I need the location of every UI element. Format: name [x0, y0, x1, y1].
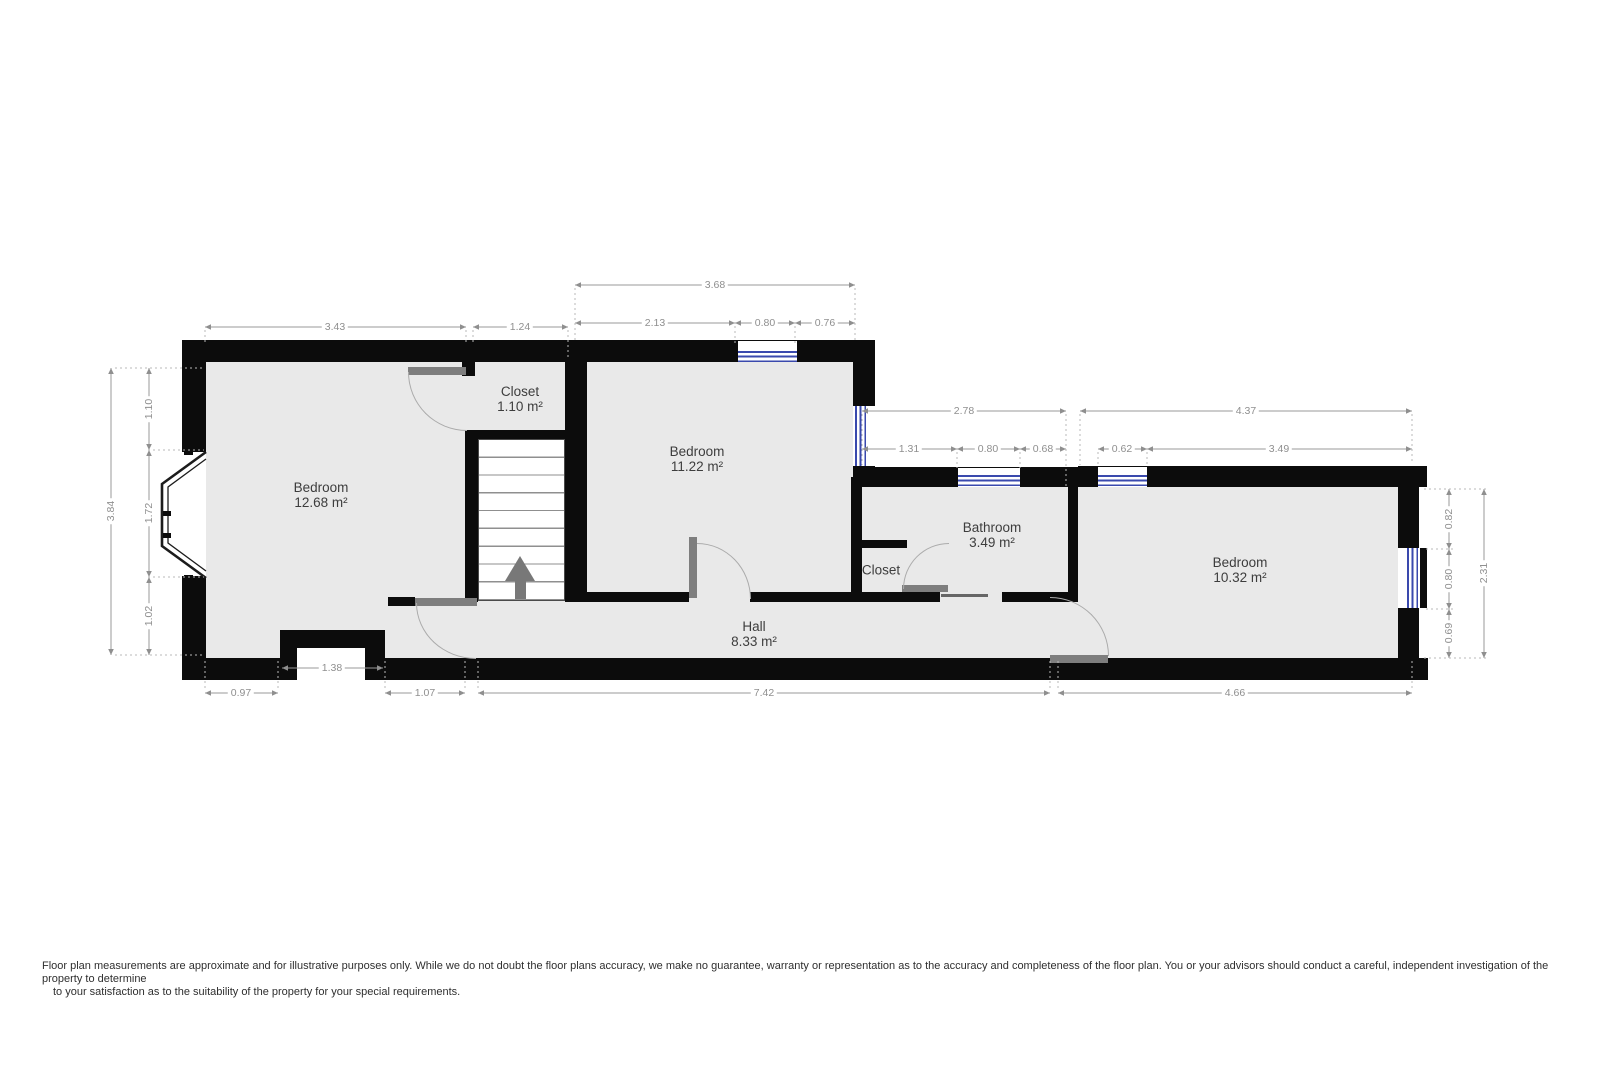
dim-top-window: 0.80 [752, 317, 778, 329]
bay-window [162, 449, 206, 581]
dim-left-b: 1.02 [143, 603, 155, 629]
dim-ne-total: 4.37 [1233, 405, 1259, 417]
dim-bottom-a: 0.97 [228, 687, 254, 699]
east-wall-recess-upper [1419, 487, 1427, 548]
wall-divider-bedroom-bathroom [851, 477, 862, 602]
room-name: Bedroom [294, 480, 349, 495]
door-leaf-bedroom-right [1050, 655, 1108, 663]
stairs-up-arrow-icon [515, 578, 526, 599]
room-area: 3.49 m² [963, 535, 1022, 550]
dim-bath-a: 1.31 [896, 443, 922, 455]
dim-bath-b: 0.68 [1030, 443, 1056, 455]
disclaimer-line-3: to your satisfaction as to the suitabili… [42, 986, 1572, 999]
dim-bath-total: 2.78 [951, 405, 977, 417]
room-label-bedroom-right: Bedroom 10.32 m² [1213, 555, 1268, 585]
door-bathroom [941, 594, 988, 597]
room-area: 10.32 m² [1213, 570, 1268, 585]
disclaimer-line-1: Floor plan measurements are approximate … [42, 960, 1572, 973]
dim-left-a: 1.10 [143, 396, 155, 422]
room-label-closet-bath: Closet [862, 563, 900, 578]
wall-bedroom-mid-south-right [750, 592, 853, 602]
dim-bottom-niche: 1.38 [319, 662, 345, 674]
room-area: 11.22 m² [670, 459, 725, 474]
room-label-bathroom: Bathroom 3.49 m² [963, 520, 1022, 550]
wall-stair-left [465, 430, 478, 602]
dim-bottom-b: 1.07 [412, 687, 438, 699]
wall-divider-bathroom-bedroom-right [1068, 487, 1078, 602]
room-name: Closet [497, 384, 543, 399]
dim-left-bay: 1.72 [143, 500, 155, 526]
east-wall-recess-lower [1419, 608, 1427, 658]
dim-ne-a: 3.49 [1266, 443, 1292, 455]
room-area: 12.68 m² [294, 495, 349, 510]
room-label-hall: Hall 8.33 m² [731, 619, 777, 649]
room-name: Bedroom [1213, 555, 1268, 570]
window-glazing [958, 475, 1020, 486]
disclaimer-text: Floor plan measurements are approximate … [42, 960, 1572, 1000]
dim-bottom-hall: 7.42 [751, 687, 777, 699]
dim-bath-window: 0.80 [975, 443, 1001, 455]
room-name: Bedroom [670, 444, 725, 459]
room-name: Bathroom [963, 520, 1022, 535]
wall-west-upper [182, 340, 206, 452]
window-glazing [1407, 548, 1418, 608]
wall-stair-right [565, 362, 587, 602]
room-area: 1.10 m² [497, 399, 543, 414]
dim-left-total: 3.84 [105, 498, 117, 524]
dim-top-a: 2.13 [642, 317, 668, 329]
dim-right-total: 2.31 [1478, 560, 1490, 586]
wall-south [182, 658, 1428, 680]
window-glazing [738, 351, 797, 362]
room-label-bedroom-left: Bedroom 12.68 m² [294, 480, 349, 510]
window-glazing [855, 406, 866, 466]
room-label-bedroom-mid: Bedroom 11.22 m² [670, 444, 725, 474]
room-name: Hall [731, 619, 777, 634]
door-leaf-bedroom-mid [689, 537, 697, 598]
dim-right-a: 0.82 [1443, 506, 1455, 532]
dim-top-b: 0.76 [812, 317, 838, 329]
room-name: Closet [862, 563, 900, 578]
dim-top-total: 3.68 [702, 279, 728, 291]
wall-closet-top-south [465, 430, 587, 439]
wall-bedroom-left-door-jamb [388, 597, 415, 606]
wall-bathroom-south-left [862, 592, 940, 602]
disclaimer-line-2: property to determine [42, 973, 1572, 986]
dim-top-left: 3.43 [322, 321, 348, 333]
room-label-closet-top: Closet 1.10 m² [497, 384, 543, 414]
room-area: 8.33 m² [731, 634, 777, 649]
wall-bedroom-mid-south-left [587, 592, 689, 602]
window-glazing [1098, 475, 1147, 486]
dim-right-window: 0.80 [1443, 566, 1455, 592]
dim-right-b: 0.69 [1443, 620, 1455, 646]
floor-plan: Bedroom 12.68 m² Closet 1.10 m² Bedroom … [0, 0, 1600, 1067]
dim-ne-window: 0.62 [1109, 443, 1135, 455]
dim-bottom-east: 4.66 [1222, 687, 1248, 699]
dim-top-closet: 1.24 [507, 321, 533, 333]
wall-closet-bath-north [862, 540, 907, 548]
